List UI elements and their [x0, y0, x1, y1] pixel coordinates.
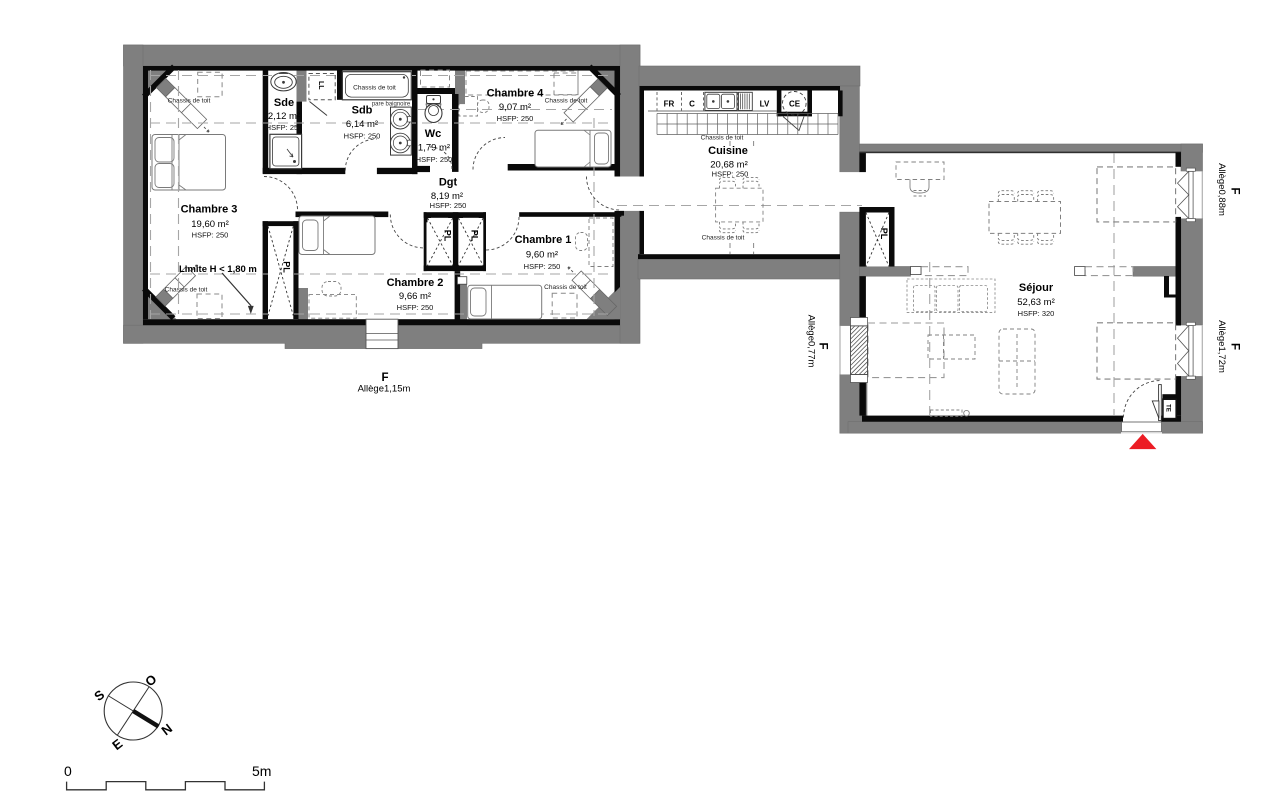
svg-text:Séjour: Séjour — [1019, 282, 1054, 294]
svg-text:PL: PL — [443, 230, 453, 242]
svg-text:HSFP: 250: HSFP: 250 — [344, 132, 381, 141]
svg-text:52,63 m²: 52,63 m² — [1017, 297, 1055, 308]
svg-text:0: 0 — [64, 763, 72, 779]
svg-text:C: C — [689, 100, 695, 109]
svg-text:CE: CE — [789, 100, 801, 109]
svg-text:19,60 m²: 19,60 m² — [191, 219, 229, 230]
svg-text:Allège0,88m: Allège0,88m — [1216, 163, 1227, 216]
svg-text:9,07 m²: 9,07 m² — [499, 102, 531, 113]
svg-text:pare baignoire: pare baignoire — [372, 102, 411, 108]
svg-text:HSFP: 250: HSFP: 250 — [430, 201, 467, 210]
svg-text:PL: PL — [470, 230, 480, 242]
svg-text:Chassis de toit: Chassis de toit — [168, 97, 211, 104]
svg-text:LV: LV — [760, 100, 770, 109]
svg-text:TE: TE — [1165, 404, 1171, 412]
svg-text:Cuisine: Cuisine — [708, 145, 748, 157]
svg-text:Chambre 2: Chambre 2 — [387, 277, 444, 289]
svg-text:Limite H < 1,80 m: Limite H < 1,80 m — [179, 264, 257, 275]
svg-text:F: F — [381, 372, 388, 384]
svg-text:Chambre 1: Chambre 1 — [515, 234, 572, 246]
svg-text:Chambre 3: Chambre 3 — [181, 204, 238, 216]
svg-text:Allège0,77m: Allège0,77m — [806, 315, 817, 368]
svg-text:Chassis de toit: Chassis de toit — [165, 286, 208, 293]
svg-text:Dgt: Dgt — [439, 177, 458, 189]
svg-text:PL: PL — [879, 228, 889, 240]
svg-text:F: F — [1229, 343, 1241, 350]
svg-text:HSFP: 250: HSFP: 250 — [192, 231, 229, 240]
svg-text:HSFP: 250: HSFP: 250 — [397, 303, 434, 312]
svg-text:LL: LL — [317, 81, 324, 90]
svg-text:HSFP: 250: HSFP: 250 — [524, 262, 561, 271]
svg-text:2,12 m²: 2,12 m² — [268, 111, 300, 122]
svg-text:F: F — [1229, 187, 1241, 194]
svg-text:6,14 m²: 6,14 m² — [346, 119, 378, 130]
svg-text:9,66 m²: 9,66 m² — [399, 291, 431, 302]
svg-text:Chassis de toit: Chassis de toit — [702, 235, 745, 242]
svg-text:HSFP: 250: HSFP: 250 — [712, 169, 749, 178]
svg-text:Chassis de toit: Chassis de toit — [353, 85, 396, 92]
svg-text:HSFP: 320: HSFP: 320 — [1018, 309, 1055, 318]
svg-text:9,60 m²: 9,60 m² — [526, 250, 558, 261]
svg-text:Allège1,15m: Allège1,15m — [358, 384, 411, 395]
svg-text:Sde: Sde — [274, 97, 294, 109]
svg-text:Chambre 4: Chambre 4 — [487, 88, 545, 100]
svg-text:HSFP: 250: HSFP: 250 — [497, 114, 534, 123]
svg-text:1,79 m²: 1,79 m² — [418, 143, 450, 154]
svg-text:HSFP: 250: HSFP: 250 — [416, 155, 453, 164]
svg-text:Chassis de toit: Chassis de toit — [544, 284, 587, 291]
svg-text:FR: FR — [664, 100, 675, 109]
svg-text:5m: 5m — [252, 763, 271, 779]
svg-text:Allège1,72m: Allège1,72m — [1216, 320, 1227, 373]
svg-text:Wc: Wc — [425, 128, 442, 140]
svg-text:Chassis de toit: Chassis de toit — [701, 134, 744, 141]
svg-text:PL: PL — [282, 261, 292, 273]
svg-text:Sdb: Sdb — [352, 105, 373, 117]
svg-text:F: F — [817, 342, 829, 349]
svg-text:Chassis de toit: Chassis de toit — [545, 97, 588, 104]
svg-text:HSFP: 250: HSFP: 250 — [266, 123, 303, 132]
